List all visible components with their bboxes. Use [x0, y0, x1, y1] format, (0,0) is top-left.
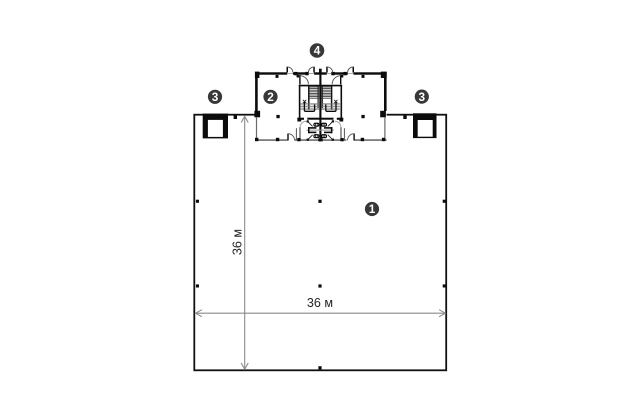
svg-text:3: 3: [419, 90, 426, 104]
svg-text:4: 4: [314, 44, 321, 58]
svg-text:36 м: 36 м: [230, 229, 244, 255]
svg-text:3: 3: [212, 90, 219, 104]
svg-text:36 м: 36 м: [307, 296, 333, 310]
svg-text:2: 2: [267, 90, 274, 104]
svg-text:1: 1: [369, 202, 376, 216]
